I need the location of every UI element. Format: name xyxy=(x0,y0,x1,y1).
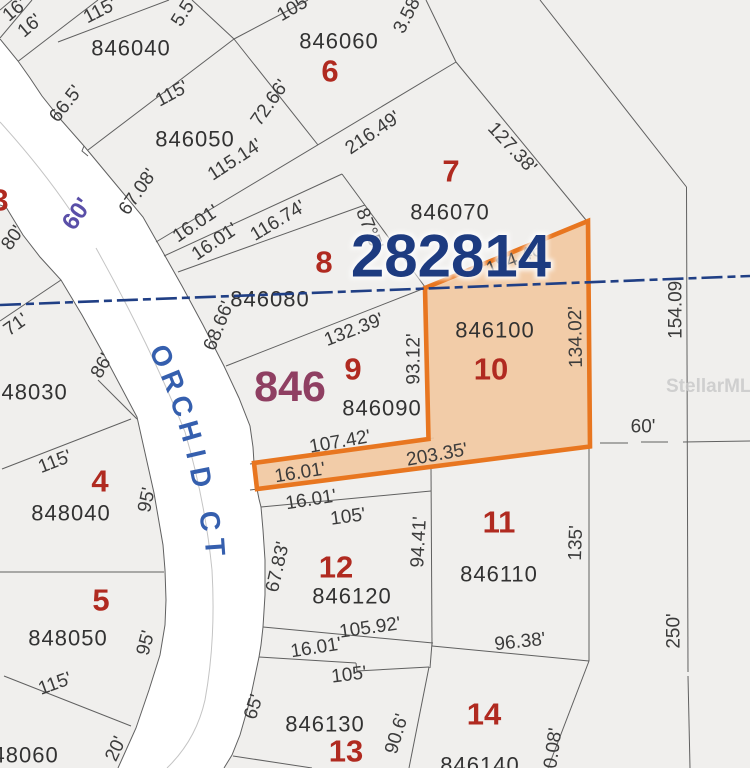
svg-text:848050: 848050 xyxy=(28,626,107,651)
svg-text:11: 11 xyxy=(483,505,516,540)
svg-text:7: 7 xyxy=(442,154,459,189)
svg-text:250': 250' xyxy=(664,613,685,648)
svg-text:C: C xyxy=(193,509,226,533)
svg-text:105': 105' xyxy=(330,662,368,687)
svg-text:5: 5 xyxy=(92,583,109,618)
svg-text:846090: 846090 xyxy=(342,396,421,421)
svg-text:14: 14 xyxy=(467,697,502,732)
svg-text:848040: 848040 xyxy=(31,501,110,526)
svg-text:154.09': 154.09' xyxy=(666,277,687,339)
svg-text:135': 135' xyxy=(565,525,587,561)
svg-text:846040: 846040 xyxy=(91,36,170,61)
svg-text:13: 13 xyxy=(329,734,363,768)
svg-text:846: 846 xyxy=(254,363,326,411)
svg-text:60': 60' xyxy=(631,417,656,438)
svg-text:93.12': 93.12' xyxy=(404,333,425,384)
svg-text:4: 4 xyxy=(91,464,109,499)
svg-text:94.41': 94.41' xyxy=(407,516,431,568)
svg-text:8: 8 xyxy=(315,245,332,280)
svg-text:846060: 846060 xyxy=(299,29,378,54)
svg-text:3: 3 xyxy=(0,183,9,218)
svg-text:846050: 846050 xyxy=(155,127,234,152)
svg-text:846100: 846100 xyxy=(455,318,534,343)
svg-text:282814: 282814 xyxy=(351,223,552,290)
svg-text:848030: 848030 xyxy=(0,380,68,405)
svg-text:10: 10 xyxy=(474,352,508,387)
svg-text:134.02': 134.02' xyxy=(565,306,587,368)
svg-text:846110: 846110 xyxy=(460,562,538,587)
svg-text:846070: 846070 xyxy=(410,200,489,225)
svg-text:T: T xyxy=(199,537,231,556)
svg-text:848060: 848060 xyxy=(0,743,59,768)
svg-text:9: 9 xyxy=(344,352,361,387)
svg-text:846140: 846140 xyxy=(440,753,519,768)
svg-text:6: 6 xyxy=(321,54,338,89)
svg-text:846120: 846120 xyxy=(312,584,391,609)
svg-text:StellarMLS: StellarMLS xyxy=(666,376,750,397)
svg-text:846080: 846080 xyxy=(230,287,309,312)
svg-text:12: 12 xyxy=(319,550,353,585)
